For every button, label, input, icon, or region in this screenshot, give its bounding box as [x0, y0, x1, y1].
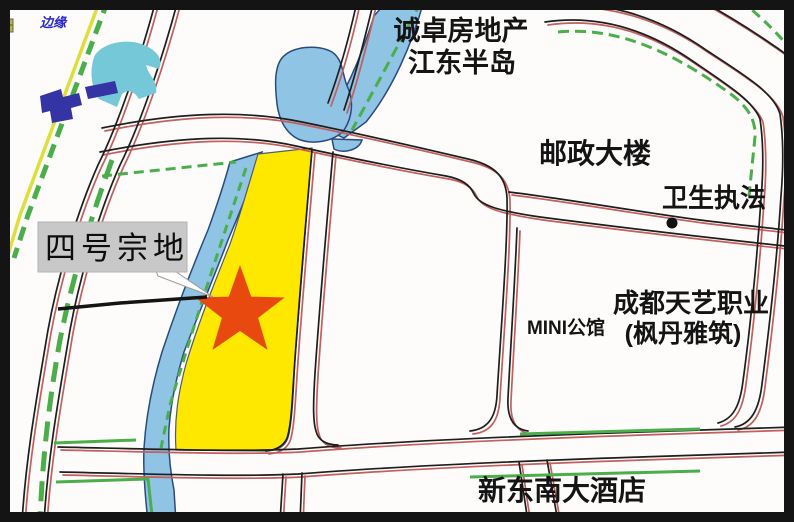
label-hotel: 新东南大酒店 [478, 474, 646, 506]
poi-dot [667, 218, 678, 229]
lake [276, 47, 352, 142]
label-mini-mansion: MINI公馆 [527, 316, 605, 339]
parcel-label: 四号宗地 [45, 231, 189, 266]
label-tianyi-line1: 成都天艺职业 [613, 288, 769, 318]
label-health-enforcement: 卫生执法 [662, 183, 766, 213]
map-canvas: 四号宗地 诚卓房地产 江东半岛 邮政大楼 卫生执法 MINI公馆 成都天艺职业 … [0, 0, 794, 522]
map-screenshot: 四号宗地 诚卓房地产 江东半岛 邮政大楼 卫生执法 MINI公馆 成都天艺职业 … [0, 0, 794, 522]
legend-label: 边缘 [39, 15, 68, 30]
label-post-office: 邮政大楼 [539, 138, 651, 169]
label-developer-line2: 江东半岛 [408, 47, 516, 78]
label-developer-line1: 诚卓房地产 [394, 16, 529, 46]
label-tianyi-line2: (枫丹雅筑) [625, 319, 742, 348]
